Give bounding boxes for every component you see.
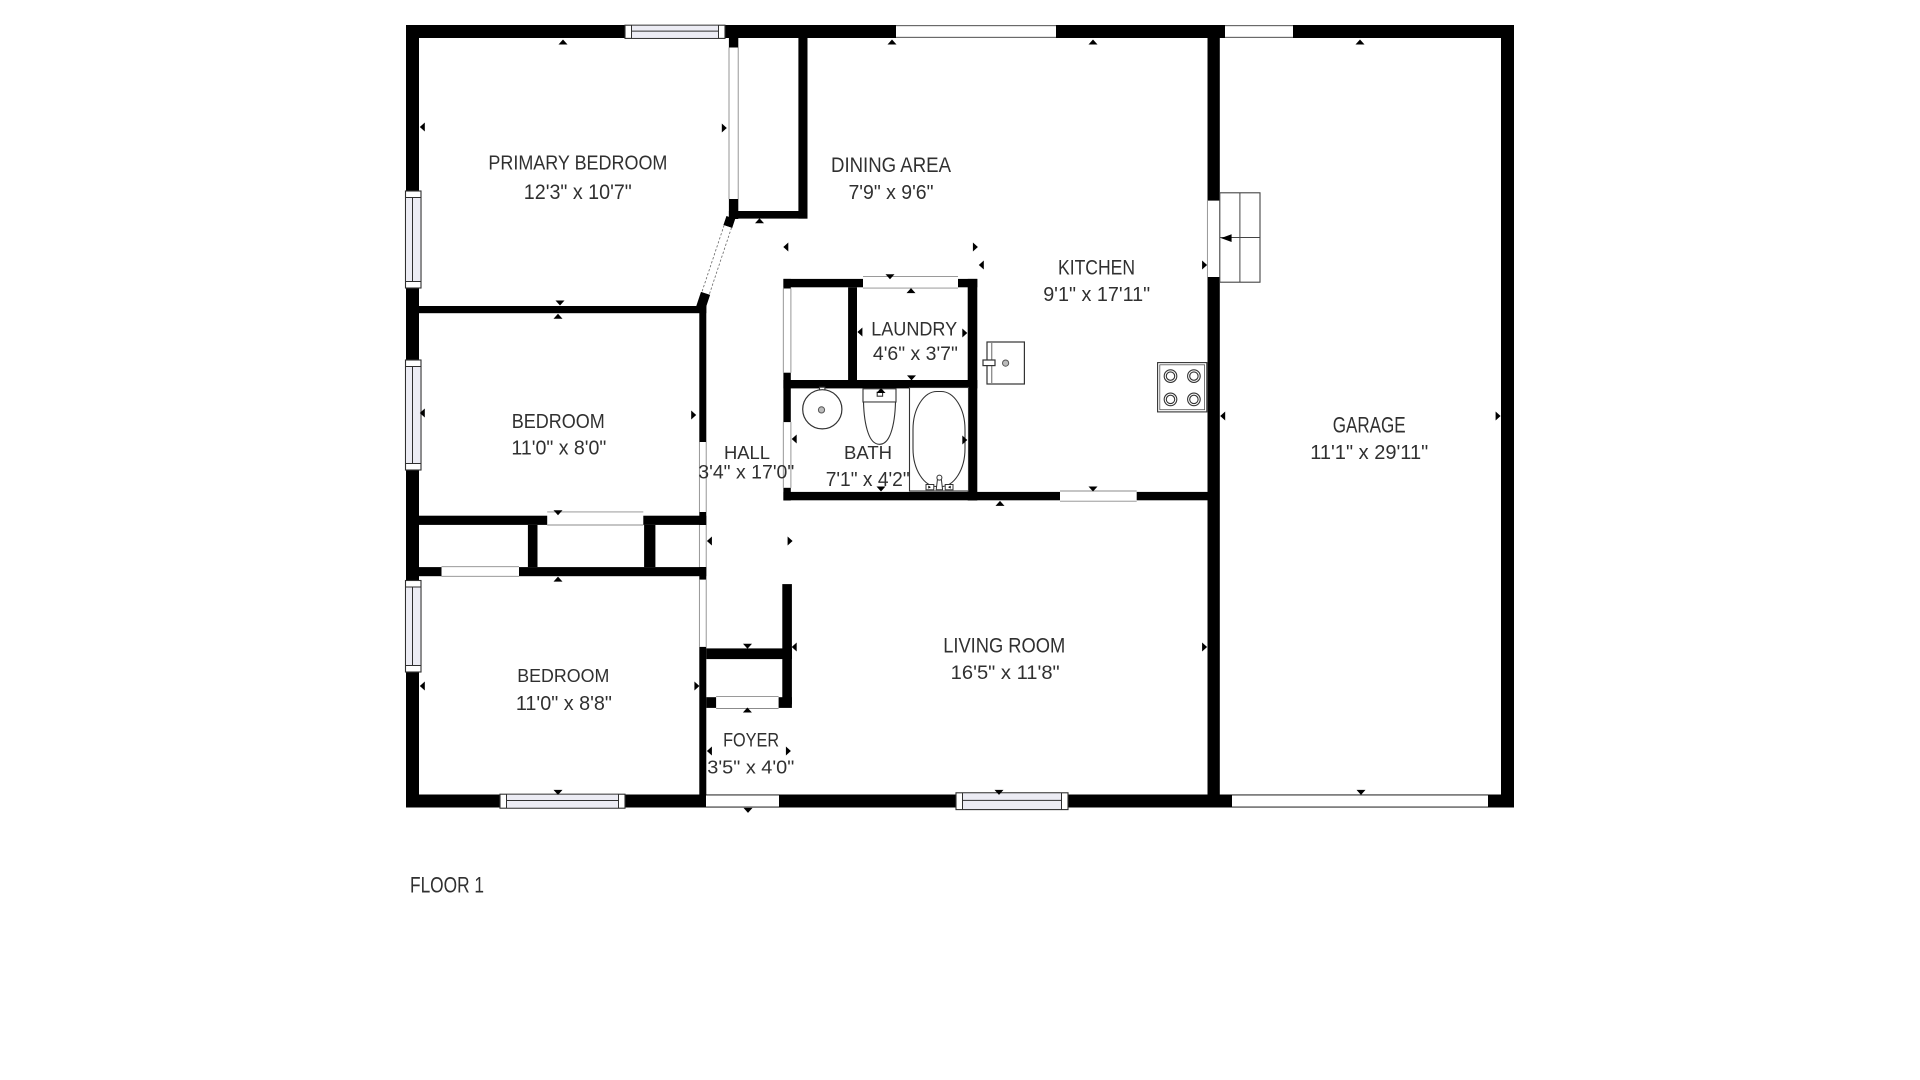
svg-text:BEDROOM: BEDROOM (517, 665, 609, 686)
svg-text:BATH: BATH (844, 443, 892, 464)
svg-text:DINING AREA: DINING AREA (831, 153, 952, 177)
svg-text:16'5" x 11'8": 16'5" x 11'8" (951, 662, 1060, 684)
svg-text:11'0" x 8'0": 11'0" x 8'0" (511, 438, 606, 460)
svg-text:11'0" x 8'8": 11'0" x 8'8" (516, 693, 612, 715)
svg-text:7'9" x 9'6": 7'9" x 9'6" (849, 182, 934, 204)
svg-text:11'1" x 29'11": 11'1" x 29'11" (1310, 442, 1428, 464)
svg-text:PRIMARY BEDROOM: PRIMARY BEDROOM (488, 151, 667, 174)
svg-text:KITCHEN: KITCHEN (1058, 256, 1135, 280)
svg-text:BEDROOM: BEDROOM (512, 411, 605, 433)
svg-text:LAUNDRY: LAUNDRY (871, 318, 957, 340)
svg-text:FOYER: FOYER (723, 731, 779, 752)
svg-text:LIVING ROOM: LIVING ROOM (943, 633, 1065, 657)
svg-text:FLOOR 1: FLOOR 1 (410, 873, 484, 898)
svg-text:7'1" x 4'2": 7'1" x 4'2" (826, 469, 910, 491)
svg-text:12'3" x 10'7": 12'3" x 10'7" (524, 180, 632, 204)
svg-text:9'1" x 17'11": 9'1" x 17'11" (1043, 284, 1150, 306)
svg-text:3'4" x 17'0": 3'4" x 17'0" (698, 463, 794, 484)
svg-text:4'6" x 3'7": 4'6" x 3'7" (873, 343, 958, 365)
svg-text:GARAGE: GARAGE (1333, 413, 1406, 438)
svg-text:3'5" x 4'0": 3'5" x 4'0" (707, 757, 794, 777)
svg-text:HALL: HALL (724, 443, 770, 464)
